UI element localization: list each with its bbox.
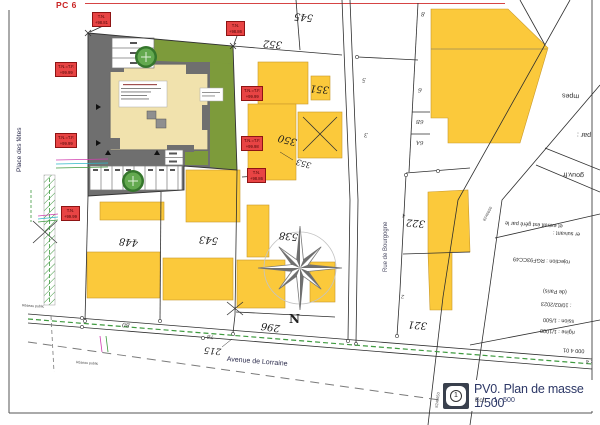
stamp-line: gouv.fr — [563, 170, 584, 178]
elevation-tag: T.N.+98.86 — [226, 21, 245, 36]
house-number-6b: 6B — [416, 118, 424, 124]
plan-sheet: PC 6 Place des fêtes Rue de Bourgogne Av… — [0, 0, 600, 425]
parcel-545: 545 — [294, 10, 314, 23]
pc6-label: PC 6 — [56, 0, 77, 10]
title-block: 1 PV0. Plan de masse 1/500 Ech : 1 : 500 — [440, 380, 598, 411]
elevation-tag: T.N.+98.81 — [92, 12, 111, 27]
elevation-tag: T.N.=T.F.+99.99 — [55, 133, 77, 148]
elevation-tag: T.N.+98.86 — [247, 168, 266, 183]
scale-value: 1 : 500 — [493, 397, 514, 404]
stamp-line: par : — [577, 131, 591, 139]
road-number-80: 80 — [122, 321, 130, 328]
sheet-number: 1 — [450, 390, 462, 402]
house-number-6a: 6A — [416, 139, 424, 145]
parcel-215: 215 — [204, 344, 222, 355]
house-number-4: 4 — [402, 212, 405, 218]
parcel-321: 321 — [408, 318, 428, 331]
north-label: N — [289, 312, 300, 326]
house-number-6: 6 — [418, 86, 422, 93]
parking-bays-east — [165, 150, 183, 165]
stamp-line: (de Paris) — [543, 287, 567, 294]
house-number-5: 5 — [362, 76, 366, 83]
surface-label-box — [200, 88, 223, 101]
parcel-538: 538 — [279, 229, 299, 242]
street-place-des-fetes: Place des fêtes — [17, 128, 24, 172]
parcel-448: 448 — [119, 235, 139, 248]
drawing-scale: Ech : 1 : 500 — [475, 397, 515, 404]
sheet-number-icon: 1 — [443, 383, 469, 409]
building-label-box — [119, 81, 167, 107]
drawing-title: PV0. Plan de masse 1/500 — [474, 382, 598, 410]
tree-icon — [122, 170, 144, 192]
parcel-543: 543 — [199, 233, 219, 246]
house-number-2: 2 — [401, 293, 404, 299]
elevation-tag: T.N.=T.F.+99.99 — [241, 86, 263, 101]
parcel-322: 322 — [406, 216, 426, 229]
parcel-351: 351 — [310, 82, 330, 95]
elevation-tag: T.N.=T.F.+99.99 — [55, 62, 77, 77]
road-number-78: 78 — [207, 333, 214, 339]
street-rue-de-bourgogne: Rue de Bourgogne — [383, 222, 389, 272]
house-number-3: 3 — [364, 131, 368, 138]
scale-label: Ech : — [475, 397, 490, 404]
house-number-8: 8 — [421, 10, 425, 17]
tree-icon — [135, 46, 157, 68]
stamp-line: 000 4 01 — [563, 346, 585, 353]
elevation-tag: T.N.+99.99 — [61, 206, 80, 221]
parcel-352: 352 — [263, 37, 283, 50]
elevation-tag: T.N.=T.F.+99.98 — [241, 136, 263, 151]
stamp-line: : 4 — [586, 358, 592, 364]
stamp-line: mpes — [562, 92, 579, 100]
